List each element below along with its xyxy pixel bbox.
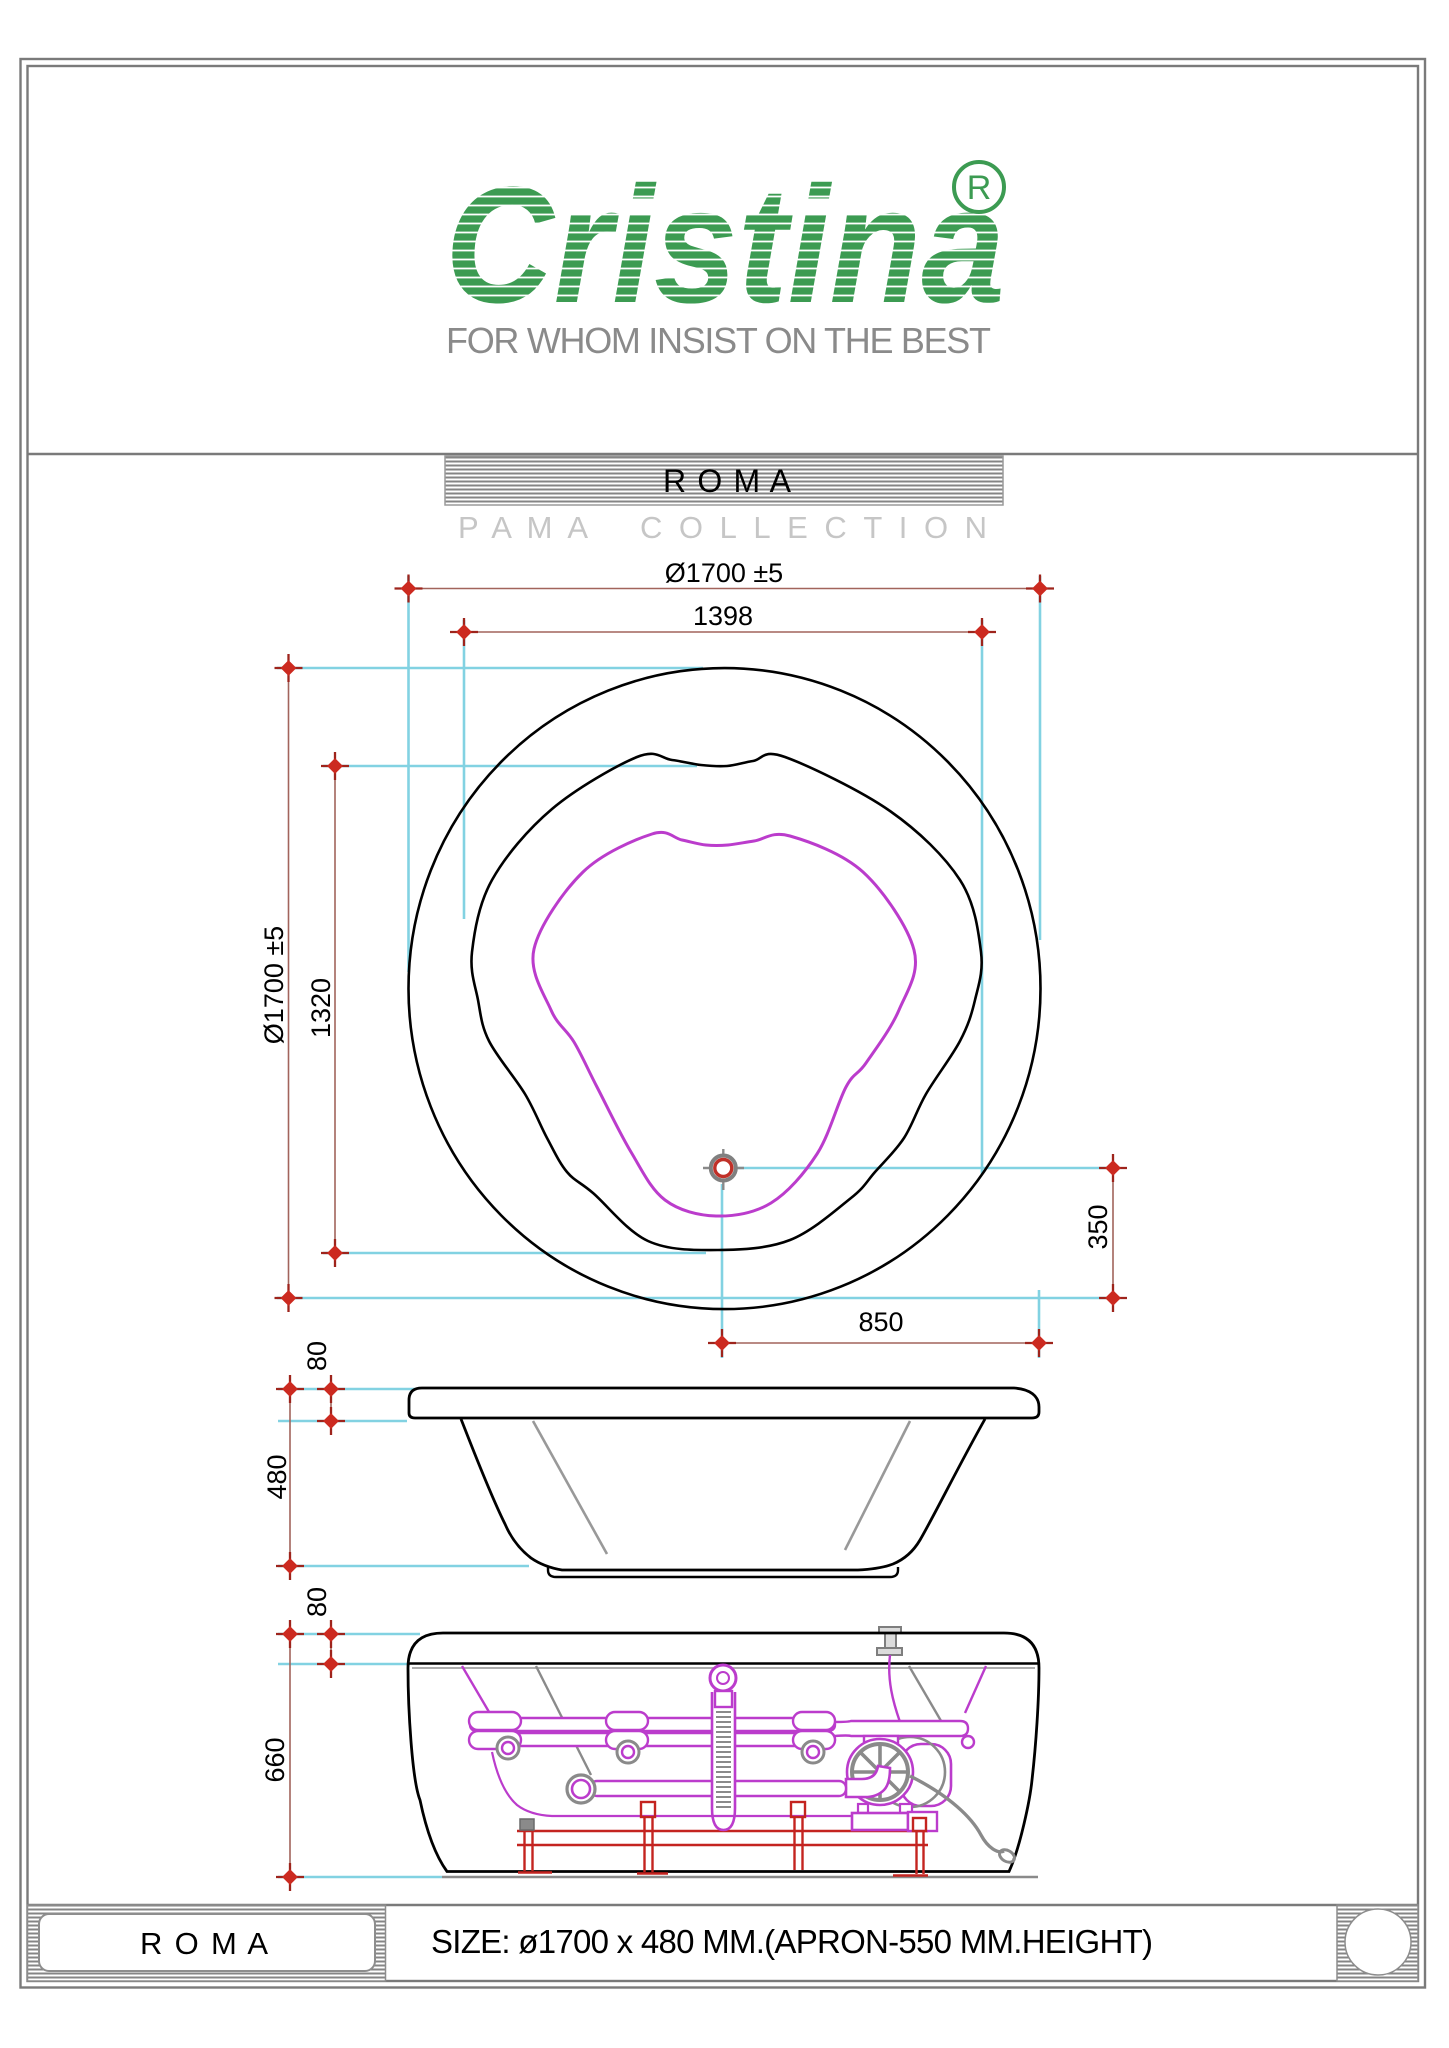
- svg-text:Ø1700 ±5: Ø1700 ±5: [259, 926, 289, 1044]
- svg-text:80: 80: [302, 1587, 332, 1617]
- svg-text:350: 350: [1083, 1204, 1113, 1249]
- svg-text:80: 80: [302, 1341, 332, 1371]
- svg-text:660: 660: [260, 1737, 290, 1782]
- svg-text:Cristina: Cristina: [445, 153, 1005, 338]
- svg-text:SIZE: ø1700 x 480 MM.(APRON-5: SIZE: ø1700 x 480 MM.(APRON-550 MM.HEIGH…: [431, 1923, 1153, 1960]
- svg-text:480: 480: [262, 1454, 292, 1499]
- svg-text:R O M A: R O M A: [663, 463, 792, 499]
- svg-text:R: R: [967, 169, 992, 207]
- svg-text:1398: 1398: [693, 601, 753, 631]
- svg-text:FOR WHOM INSIST ON THE BEST: FOR WHOM INSIST ON THE BEST: [446, 320, 991, 361]
- svg-text:1320: 1320: [306, 978, 336, 1038]
- svg-text:R O M A: R O M A: [140, 1926, 268, 1961]
- svg-text:Ø1700 ±5: Ø1700 ±5: [665, 558, 783, 588]
- svg-text:850: 850: [858, 1307, 903, 1337]
